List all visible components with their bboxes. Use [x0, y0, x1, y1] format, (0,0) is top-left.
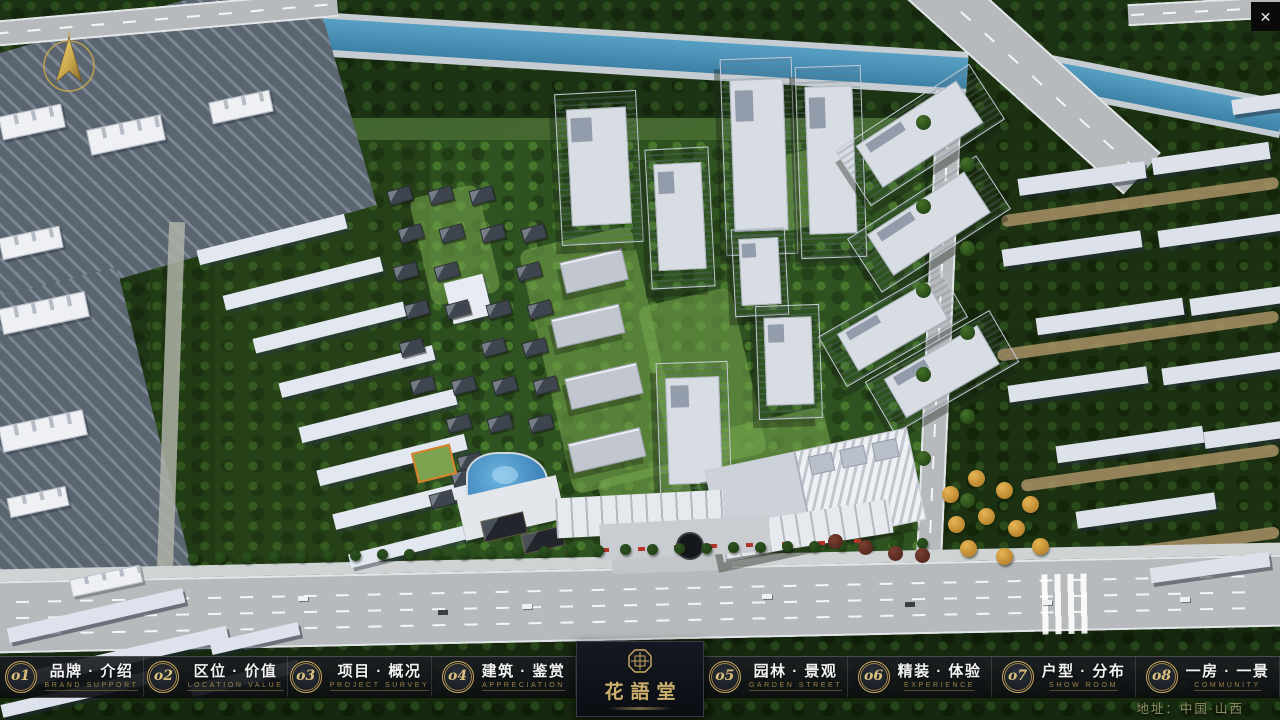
nav-text: 区位 · 价值 LOCATION VALUE: [187, 664, 283, 691]
nav-item-location-value[interactable]: o2 区位 · 价值 LOCATION VALUE: [144, 657, 288, 697]
nav-subtitle: BRAND SUPPORT: [45, 682, 139, 691]
nav-text: 一房 · 一景 COMMUNITY: [1186, 664, 1270, 691]
tree: [916, 199, 931, 214]
nav-number: o4: [448, 668, 467, 684]
nav-item-project-overview[interactable]: o3 项目 · 概况 PROJECT SURVEY: [288, 657, 432, 697]
nav-number: o6: [864, 668, 883, 684]
nav-subtitle: APPRECIATION: [482, 682, 565, 691]
tower: [644, 146, 715, 289]
tree: [916, 367, 931, 382]
number-badge-icon: o6: [858, 661, 890, 693]
logo-tagline-rule: [608, 707, 672, 710]
nav-subtitle: COMMUNITY: [1194, 682, 1261, 691]
tree: [458, 548, 469, 559]
pool-highlight: [492, 466, 518, 484]
nav-subtitle: EXPERIENCE: [904, 682, 975, 691]
nav-item-brand-intro[interactable]: o1 品牌 · 介绍 BRAND SUPPORT: [0, 657, 144, 697]
logo-name: 花語堂: [597, 677, 682, 704]
golden-tree: [1008, 520, 1025, 537]
tree: [809, 541, 820, 552]
nav-item-architecture[interactable]: o4 建筑 · 鉴赏 APPRECIATION: [432, 657, 576, 697]
tree: [960, 409, 975, 424]
nav-title: 项目 · 概况: [338, 664, 422, 679]
number-badge-icon: o2: [147, 661, 179, 693]
nav-number: o7: [1008, 668, 1027, 684]
nav-subtitle: SHOW ROOM: [1049, 682, 1118, 691]
tree: [916, 283, 931, 298]
red-tree: [915, 548, 930, 563]
golden-tree: [960, 540, 977, 557]
tree: [350, 550, 361, 561]
nav-number: o5: [715, 668, 734, 684]
close-button[interactable]: ✕: [1251, 2, 1280, 31]
tower: [554, 90, 644, 246]
tree: [960, 325, 975, 340]
tree: [485, 547, 496, 558]
golden-tree: [996, 482, 1013, 499]
nav-subtitle: PROJECT SURVEY: [330, 682, 430, 691]
golden-tree: [948, 516, 965, 533]
app-window: ✕ o1 品牌 · 介绍 BRAND SUPPORT o2 区位 · 价值 LO…: [0, 0, 1280, 720]
nav-title: 精装 · 体验: [898, 664, 982, 679]
car: [298, 596, 308, 601]
tree: [755, 542, 766, 553]
golden-tree: [978, 508, 995, 525]
red-tree: [858, 540, 873, 555]
nav-item-decor-experience[interactable]: o6 精装 · 体验 EXPERIENCE: [848, 657, 992, 697]
nav-text: 精装 · 体验 EXPERIENCE: [898, 664, 982, 691]
car: [522, 604, 532, 609]
nav-number: o3: [296, 668, 315, 684]
nav-title: 品牌 · 介绍: [50, 664, 134, 679]
number-badge-icon: o5: [709, 661, 741, 693]
number-badge-icon: o1: [5, 661, 37, 693]
tree: [916, 115, 931, 130]
car: [746, 543, 753, 547]
number-badge-icon: o4: [442, 661, 474, 693]
logo-seal-icon: [627, 648, 653, 674]
nav-title: 一房 · 一景: [1186, 664, 1270, 679]
bottom-nav-bar: o1 品牌 · 介绍 BRAND SUPPORT o2 区位 · 价值 LOCA…: [0, 656, 1280, 697]
nav-subtitle: LOCATION VALUE: [187, 682, 283, 691]
nav-title: 区位 · 价值: [194, 664, 278, 679]
nav-number: o2: [154, 668, 173, 684]
golden-tree: [1032, 538, 1049, 555]
number-badge-icon: o8: [1146, 661, 1178, 693]
car: [905, 602, 915, 607]
number-badge-icon: o7: [1002, 661, 1034, 693]
tree: [512, 547, 523, 558]
red-tree: [888, 546, 903, 561]
nav-subtitle: GARDEN STREET: [749, 682, 842, 691]
nav-text: 品牌 · 介绍 BRAND SUPPORT: [45, 664, 139, 691]
project-address: 地址：中国·山西: [1136, 698, 1244, 717]
car: [438, 610, 448, 615]
tree: [647, 544, 658, 555]
project-logo[interactable]: 花語堂: [576, 641, 704, 717]
golden-tree: [968, 470, 985, 487]
compass-north-icon: [38, 30, 100, 101]
map-3d-view[interactable]: [0, 0, 1280, 720]
tree: [188, 553, 199, 564]
nav-item-floorplans[interactable]: o7 户型 · 分布 SHOW ROOM: [992, 657, 1136, 697]
tree: [539, 546, 550, 557]
nav-number: o1: [11, 668, 30, 684]
tower: [755, 304, 823, 420]
nav-title: 户型 · 分布: [1042, 664, 1126, 679]
car: [1042, 600, 1052, 605]
nav-text: 建筑 · 鉴赏 APPRECIATION: [482, 664, 566, 691]
nav-title: 园林 · 景观: [754, 664, 838, 679]
tree: [593, 545, 604, 556]
golden-tree: [996, 548, 1013, 565]
golden-tree: [942, 486, 959, 503]
golden-tree: [1022, 496, 1039, 513]
tower: [731, 227, 790, 318]
car: [762, 594, 772, 599]
red-tree: [828, 534, 843, 549]
tree: [960, 493, 975, 508]
nav-item-garden-landscape[interactable]: o5 园林 · 景观 GARDEN STREET: [704, 657, 848, 697]
tower: [720, 57, 799, 256]
tree: [701, 543, 712, 554]
nav-number: o8: [1152, 668, 1171, 684]
tree: [242, 552, 253, 563]
tree: [960, 241, 975, 256]
nav-text: 园林 · 景观 GARDEN STREET: [749, 664, 842, 691]
nav-title: 建筑 · 鉴赏: [482, 664, 566, 679]
tree: [916, 451, 931, 466]
tree: [296, 551, 307, 562]
tree: [960, 157, 975, 172]
nav-text: 户型 · 分布 SHOW ROOM: [1042, 664, 1126, 691]
nav-item-one-room-one-view[interactable]: o8 一房 · 一景 COMMUNITY: [1136, 657, 1280, 697]
nav-text: 项目 · 概况 PROJECT SURVEY: [330, 664, 430, 691]
tree: [404, 549, 415, 560]
car: [1180, 597, 1190, 602]
car: [638, 546, 645, 550]
number-badge-icon: o3: [290, 661, 322, 693]
